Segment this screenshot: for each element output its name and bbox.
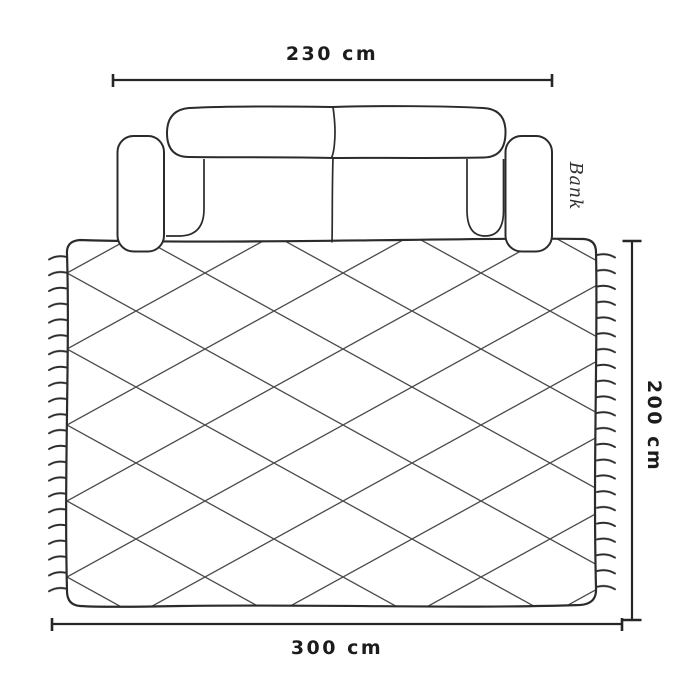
rug-diagram-canvas: 230 cm 300 cm 200 cm Bank	[0, 0, 700, 700]
sofa-width-label: 230 cm	[286, 43, 378, 65]
sofa-seat-edge-right	[467, 159, 504, 236]
sofa-name-label: Bank	[565, 161, 585, 210]
rug-size-diagram: 230 cm 300 cm 200 cm Bank	[0, 0, 700, 700]
sofa-armrest-left	[118, 136, 165, 252]
rug-diamond-pattern	[66, 239, 596, 607]
rug-width-label: 300 cm	[291, 637, 383, 659]
rug-fringe-right	[595, 248, 618, 600]
rug	[46, 239, 618, 607]
sofa	[118, 106, 553, 251]
sofa-seat-divider	[332, 158, 333, 243]
dimension-sofa-width	[113, 74, 552, 87]
sofa-backrest	[167, 106, 506, 158]
rug-height-label: 200 cm	[643, 380, 665, 472]
dimension-rug-width	[52, 618, 622, 631]
dimension-rug-height	[623, 241, 642, 620]
sofa-seat-edge-left	[166, 159, 204, 236]
sofa-armrest-right	[506, 136, 553, 252]
